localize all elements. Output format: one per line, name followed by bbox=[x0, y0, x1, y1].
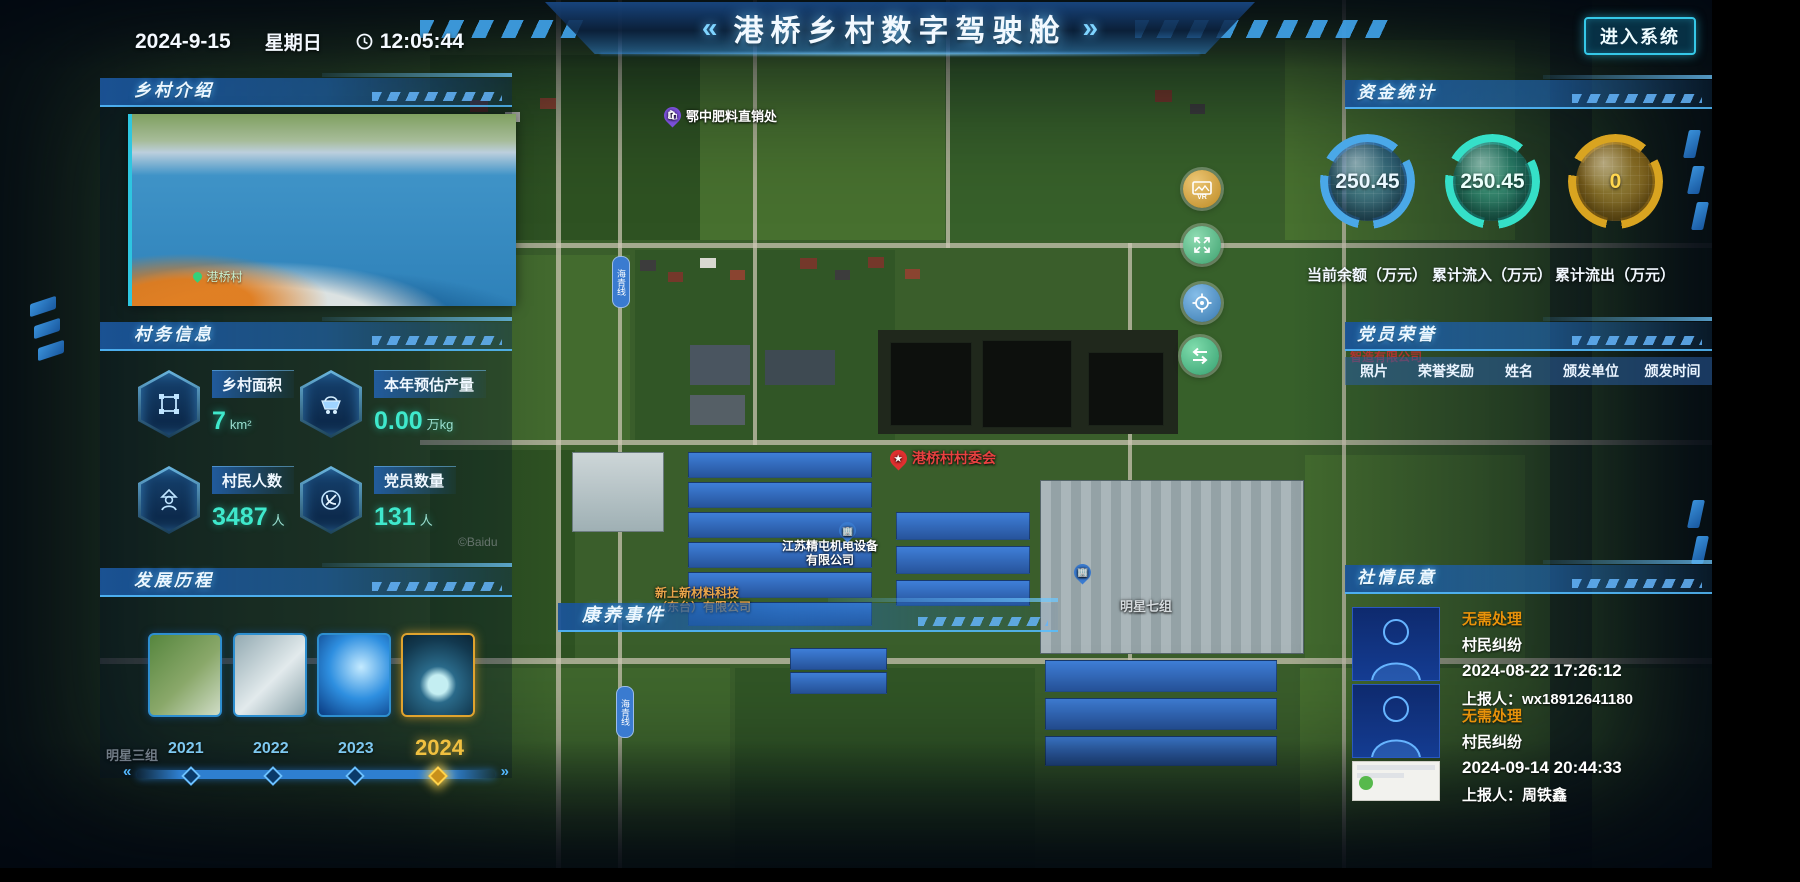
thumb-dot bbox=[1359, 776, 1373, 790]
stat-unit: 万kg bbox=[427, 417, 454, 432]
person-hologram-icon bbox=[1366, 614, 1426, 680]
opinion-category: 村民纠纷 bbox=[1462, 634, 1622, 655]
stat-unit: km² bbox=[230, 417, 252, 432]
current-date: 2024-9-15 bbox=[135, 30, 231, 54]
person-hologram-icon bbox=[1366, 691, 1426, 757]
map-pond bbox=[890, 342, 972, 426]
development-thumb-2021[interactable] bbox=[148, 633, 222, 717]
map-house bbox=[800, 258, 817, 269]
year-2022[interactable]: 2022 bbox=[253, 740, 289, 758]
stat-villager-count: 村民人数 3487人 bbox=[138, 466, 294, 534]
panel-title: 党员荣誉 bbox=[1345, 322, 1712, 347]
target-icon bbox=[1191, 292, 1213, 314]
gauge-label-inflow: 累计流入（万元） bbox=[1422, 264, 1562, 285]
page-title-banner: « 港桥乡村数字驾驶舱 » bbox=[545, 2, 1255, 54]
road-badge: 海青线 bbox=[612, 256, 630, 308]
dashboard-stage: ©Baidu « 港桥乡村数字驾驶舱 » 2024-9-15 星期日 12:05… bbox=[0, 0, 1800, 882]
gauge-value: 0 bbox=[1568, 134, 1663, 229]
screen-black-edge-bottom bbox=[0, 868, 1800, 882]
map-patch bbox=[950, 55, 1280, 240]
panel-header-funds: 资金统计 bbox=[1345, 80, 1712, 109]
map-warehouse bbox=[1045, 698, 1277, 730]
road-badge: 海青线 bbox=[616, 686, 634, 738]
map-house bbox=[730, 270, 745, 280]
datetime-bar: 2024-9-15 星期日 12:05:44 bbox=[135, 28, 464, 55]
locate-button[interactable] bbox=[1183, 284, 1221, 322]
year-2024[interactable]: 2024 bbox=[415, 735, 464, 761]
party-icon bbox=[300, 466, 362, 534]
map-poi-label-line1: 新上新材料科技 bbox=[655, 586, 739, 600]
opinion-entry[interactable]: 无需处理 村民纠纷 2024-08-22 17:26:12 bbox=[1462, 608, 1622, 681]
gauge-label-outflow: 累计流出（万元） bbox=[1545, 264, 1685, 285]
gauge-label-balance: 当前余额（万元） bbox=[1297, 264, 1437, 285]
title-arrow-left-icon: « bbox=[702, 12, 718, 44]
enter-system-button[interactable]: 进入系统 bbox=[1584, 17, 1696, 55]
stat-party-member-count: 党员数量 131人 bbox=[300, 466, 456, 534]
panel-title: 乡村介绍 bbox=[100, 78, 512, 103]
map-warehouse bbox=[896, 546, 1030, 574]
page-title: 港桥乡村数字驾驶舱 bbox=[734, 6, 1067, 50]
vr-image-icon: VR bbox=[1191, 178, 1213, 200]
villager-icon bbox=[138, 466, 200, 534]
opinion-time: 2024-09-14 20:44:33 bbox=[1462, 758, 1622, 778]
map-poi-committee[interactable]: ★ 港桥村村委会 bbox=[890, 448, 996, 468]
stat-label: 本年预估产量 bbox=[374, 370, 486, 398]
star-pin-icon: ★ bbox=[886, 446, 910, 470]
shop-pin-icon: 🛍 bbox=[660, 103, 684, 127]
gauge-balance: 250.45 bbox=[1320, 134, 1415, 229]
map-building bbox=[572, 452, 664, 532]
panel-header-development: 发展历程 bbox=[100, 568, 512, 597]
fullscreen-expand-button[interactable] bbox=[1183, 226, 1221, 264]
map-warehouse bbox=[790, 672, 887, 694]
opinion-entry[interactable]: 无需处理 村民纠纷 2024-09-14 20:44:33 bbox=[1462, 705, 1622, 778]
map-warehouse bbox=[790, 648, 887, 670]
map-building bbox=[765, 350, 835, 385]
panel-title: 社情民意 bbox=[1345, 565, 1712, 590]
map-poi-fertilizer[interactable]: 🛍 鄂中肥料直销处 bbox=[664, 106, 777, 125]
screen-black-edge-right bbox=[1712, 0, 1800, 882]
gauge-value: 250.45 bbox=[1445, 134, 1540, 229]
map-patch bbox=[700, 40, 945, 240]
map-warehouse bbox=[688, 482, 872, 508]
stat-label: 党员数量 bbox=[374, 466, 456, 494]
development-thumb-2022[interactable] bbox=[233, 633, 307, 717]
panel-header-health-events: 康养事件 bbox=[558, 603, 1058, 632]
column-award: 荣誉奖励 bbox=[1403, 361, 1489, 381]
opinion-time: 2024-08-22 17:26:12 bbox=[1462, 661, 1622, 681]
stat-village-area: 乡村面积 7km² bbox=[138, 370, 294, 438]
year-2023[interactable]: 2023 bbox=[338, 740, 374, 758]
weekday: 星期日 bbox=[265, 28, 322, 55]
title-arrow-right-icon: » bbox=[1083, 12, 1099, 44]
map-poi-label: 港桥村村委会 bbox=[912, 448, 996, 468]
vr-panorama-button[interactable]: VR bbox=[1183, 170, 1221, 208]
stat-estimated-output: 本年预估产量 0.00万kg bbox=[300, 370, 486, 438]
gauge-outflow: 0 bbox=[1568, 134, 1663, 229]
map-pond bbox=[1088, 352, 1164, 426]
thumb-line bbox=[1357, 765, 1435, 770]
stat-value: 131 bbox=[374, 503, 416, 531]
village-photo: 港桥村 bbox=[128, 114, 516, 306]
photo-caption: 港桥村 bbox=[193, 268, 242, 285]
title-glow bbox=[600, 52, 1200, 56]
clock-group: 12:05:44 bbox=[356, 30, 464, 54]
map-pond bbox=[982, 340, 1072, 428]
map-house bbox=[835, 270, 850, 280]
gauge-value: 250.45 bbox=[1320, 134, 1415, 229]
current-time: 12:05:44 bbox=[380, 30, 464, 54]
map-building bbox=[690, 345, 750, 385]
layer-switch-button[interactable] bbox=[1181, 337, 1219, 375]
year-2021[interactable]: 2021 bbox=[168, 740, 204, 758]
development-thumb-2024[interactable] bbox=[401, 633, 475, 717]
panel-title: 村务信息 bbox=[100, 322, 512, 347]
panel-header-village-info: 村务信息 bbox=[100, 322, 512, 351]
party-honor-table-header: 照片 荣誉奖励 姓名 颁发单位 颁发时间 bbox=[1345, 357, 1712, 385]
stat-value: 7 bbox=[212, 407, 226, 435]
map-house bbox=[700, 258, 716, 268]
map-warehouse bbox=[896, 512, 1030, 540]
opinion-attachment-thumb[interactable] bbox=[1352, 761, 1440, 801]
map-house bbox=[905, 269, 920, 279]
stat-unit: 人 bbox=[272, 513, 285, 528]
stat-unit: 人 bbox=[420, 513, 433, 528]
timeline-prev-icon[interactable]: « bbox=[123, 763, 131, 780]
map-poi-label-line1: 江苏精屯机电设备 bbox=[782, 539, 878, 553]
gauge-inflow: 250.45 bbox=[1445, 134, 1540, 229]
opinion-reporter: 上报人：周铁鑫 bbox=[1462, 784, 1567, 805]
panel-header-public-opinion: 社情民意 bbox=[1345, 565, 1712, 594]
expand-arrows-icon bbox=[1191, 234, 1213, 256]
area-icon bbox=[138, 370, 200, 438]
map-building bbox=[690, 395, 745, 425]
location-pin-icon bbox=[192, 270, 205, 283]
panel-title: 发展历程 bbox=[100, 568, 512, 593]
building-pin-icon: 🏢 bbox=[1070, 560, 1094, 584]
stat-value: 3487 bbox=[212, 503, 268, 531]
cart-icon bbox=[300, 370, 362, 438]
map-house bbox=[1190, 104, 1205, 114]
swap-arrows-icon bbox=[1188, 344, 1212, 368]
column-name: 姓名 bbox=[1489, 361, 1549, 381]
map-house bbox=[868, 257, 884, 268]
map-house bbox=[668, 272, 683, 282]
column-photo: 照片 bbox=[1345, 361, 1403, 381]
map-warehouse bbox=[688, 452, 872, 478]
opinion-avatar[interactable] bbox=[1352, 607, 1440, 681]
map-label-group7: 明星七组 bbox=[1120, 596, 1172, 615]
svg-text:VR: VR bbox=[1197, 194, 1207, 200]
map-poi-label: 鄂中肥料直销处 bbox=[686, 106, 777, 125]
panel-title: 资金统计 bbox=[1345, 80, 1712, 105]
map-poi-company1[interactable]: 🏢 江苏精屯机电设备 有限公司 bbox=[782, 522, 878, 567]
clock-icon bbox=[356, 33, 373, 50]
stat-label: 村民人数 bbox=[212, 466, 294, 494]
timeline-next-icon[interactable]: » bbox=[501, 763, 509, 780]
column-issue-date: 颁发时间 bbox=[1633, 361, 1712, 381]
development-thumb-2023[interactable] bbox=[317, 633, 391, 717]
panel-header-party-honor: 党员荣誉 bbox=[1345, 322, 1712, 351]
opinion-category: 村民纠纷 bbox=[1462, 731, 1622, 752]
map-poi-label-line2: 有限公司 bbox=[806, 553, 854, 567]
panel-header-village-intro: 乡村介绍 bbox=[100, 78, 512, 107]
photo-caption-text: 港桥村 bbox=[206, 268, 242, 285]
stat-value: 0.00 bbox=[374, 407, 423, 435]
opinion-status: 无需处理 bbox=[1462, 705, 1622, 726]
map-poi-group7-pin[interactable]: 🏢 bbox=[1074, 562, 1091, 581]
map-warehouse bbox=[1045, 660, 1277, 692]
column-issuer: 颁发单位 bbox=[1549, 361, 1633, 381]
map-house bbox=[1155, 90, 1172, 102]
opinion-status: 无需处理 bbox=[1462, 608, 1622, 629]
opinion-avatar[interactable] bbox=[1352, 684, 1440, 758]
map-house bbox=[640, 260, 656, 271]
panel-title: 康养事件 bbox=[558, 603, 1058, 628]
timeline-slider[interactable]: « » bbox=[137, 770, 495, 779]
stat-label: 乡村面积 bbox=[212, 370, 294, 398]
